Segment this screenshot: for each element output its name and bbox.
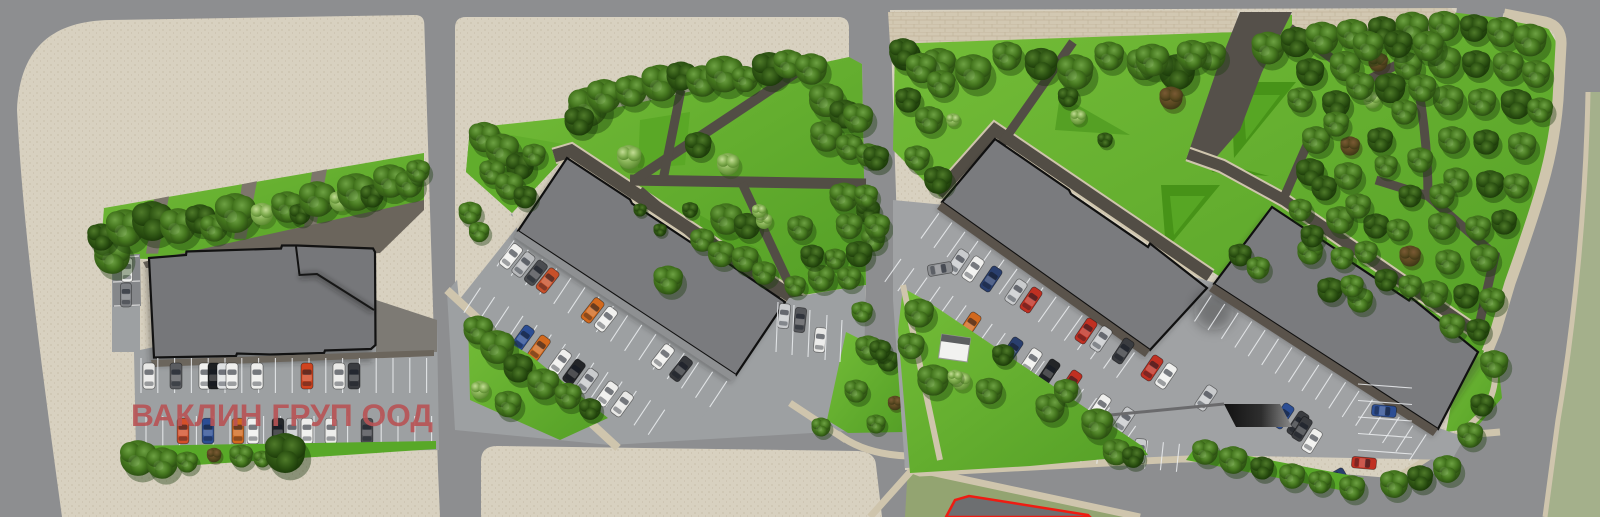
svg-text:ВАКЛИН ГРУП ООД: ВАКЛИН ГРУП ООД bbox=[131, 397, 433, 433]
